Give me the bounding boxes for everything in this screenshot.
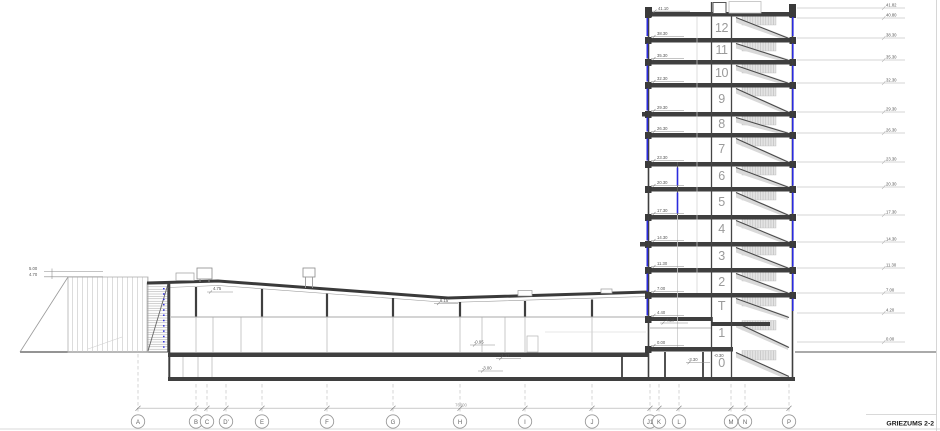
right-elev-10: 14.30 [886,236,897,241]
floor-number-9: 9 [718,92,725,106]
hall-elevation-roof: 4.75 [213,286,222,291]
floor-number-1: 1 [718,326,725,340]
lift-overrun [713,3,726,14]
floor-numbers: 12 11 10 9 8 7 6 5 4 3 2 T 1 0 [715,21,728,370]
right-elev-5: 29.30 [886,106,897,111]
grid-letter-c: C [205,420,210,426]
elev-f3: 11.30 [657,261,668,266]
elev-f0: -3.30 [688,357,698,362]
section-canvas: 5.00 4.70 [0,0,940,431]
grid-bubbles: A B C D' E F G H I J J1 K L M N P [131,415,795,428]
elev-f4: 14.30 [657,235,668,240]
elev-landing: 4.20 [666,317,675,322]
floor-number-10: 10 [715,66,728,80]
floor-number-8: 8 [718,117,725,131]
elev-f5: 17.30 [657,208,668,213]
hall-elevation-recess: -1.17 [500,353,510,358]
floor-number-3: 3 [718,249,725,263]
hall-elevation-floor: -0.95 [474,339,484,344]
right-elev-0: 41.82 [886,2,897,7]
door-outline [527,336,538,352]
right-elev-8: 20.30 [886,181,897,186]
overall-dimension: 76000 [455,403,467,408]
right-elev-12: 7.00 [886,287,895,292]
grid-letter-p: P [787,420,791,426]
roof-elevation: 41.10 [658,6,669,11]
elev-f11: 35.30 [657,53,668,58]
right-elev-14: 0.00 [886,336,895,341]
drawing-frame [0,0,940,431]
elev-f9: 29.30 [657,105,668,110]
right-elev-4: 32.30 [886,77,897,82]
left-annex: 5.00 4.70 [20,266,148,352]
right-elevation-leaders: 41.82 40.80 38.30 35.30 32.30 29.30 26.3… [797,2,905,344]
hall-elevation-labels: 4.75 6.15 -0.95 -1.17 -3.00 [207,286,521,373]
right-elev-7: 23.30 [886,156,897,161]
right-elev-11: 11.30 [886,262,897,267]
grid-letter-k: K [657,420,661,426]
elev-f12: 38.30 [657,31,668,36]
louver-stair-screen [147,283,168,352]
elev-ft: 4.40 [657,310,666,315]
right-elev-13: 4.20 [886,307,895,312]
hall-elevation-ceiling: 6.15 [440,298,449,303]
tower-section: 12 11 10 9 8 7 6 5 4 3 2 T 1 0 41.10 38.… [640,2,796,382]
floor-number-7: 7 [718,142,725,156]
elev-f6: 20.30 [657,180,668,185]
grid-letter-g: G [391,420,396,426]
roof-bulkhead [729,2,761,14]
elev-f10: 32.30 [657,76,668,81]
grid-letter-d: D' [223,420,228,426]
floor-number-t: T [718,299,726,313]
right-elev-2: 38.30 [886,32,897,37]
annex-elevation-upper: 5.00 [29,266,38,271]
grid-letter-b: B [194,420,198,426]
architectural-section-drawing: 5.00 4.70 [0,0,940,431]
grid-letter-a: A [136,420,140,426]
floor-number-11: 11 [716,43,729,57]
hall-columns [196,287,592,317]
elev-f7: 23.30 [657,155,668,160]
right-elev-9: 17.30 [886,209,897,214]
hall-roof [147,281,648,298]
floor-number-6: 6 [718,169,725,183]
parapet-left [645,7,652,17]
ground-floor-slab [168,353,648,358]
tower-elevation-labels: 41.10 38.30 35.30 32.30 29.30 26.30 23.3… [651,6,724,364]
elev-f2: 7.00 [657,286,666,291]
grid-letter-n: N [743,420,747,426]
floor-number-12: 12 [715,21,728,35]
grid-system: 76000 A B C D' E F G H I J J1 K L M N P [131,354,795,428]
parapet-right [789,4,796,17]
grid-letter-h: H [458,420,462,426]
right-elev-3: 35.30 [886,54,897,59]
grid-letter-f: F [325,420,329,426]
hall-elevation-basement: -3.00 [482,365,492,370]
hall-section [147,268,795,381]
annex-elevation-lower: 4.70 [29,272,38,277]
floor-number-5: 5 [718,195,725,209]
floor-number-4: 4 [718,222,725,236]
elev-pit: -0.30 [714,353,724,358]
elev-f8: 26.30 [657,126,668,131]
grid-letter-e: E [260,420,264,426]
grid-letter-m: M [729,420,734,426]
elev-f1: 0.00 [657,340,666,345]
grid-letter-j: J [591,420,594,426]
right-elev-6: 26.30 [886,127,897,132]
right-elev-1: 40.80 [886,12,897,17]
floor-number-2: 2 [718,275,725,289]
drawing-title: GRIEZUMS 2-2 [886,421,934,428]
